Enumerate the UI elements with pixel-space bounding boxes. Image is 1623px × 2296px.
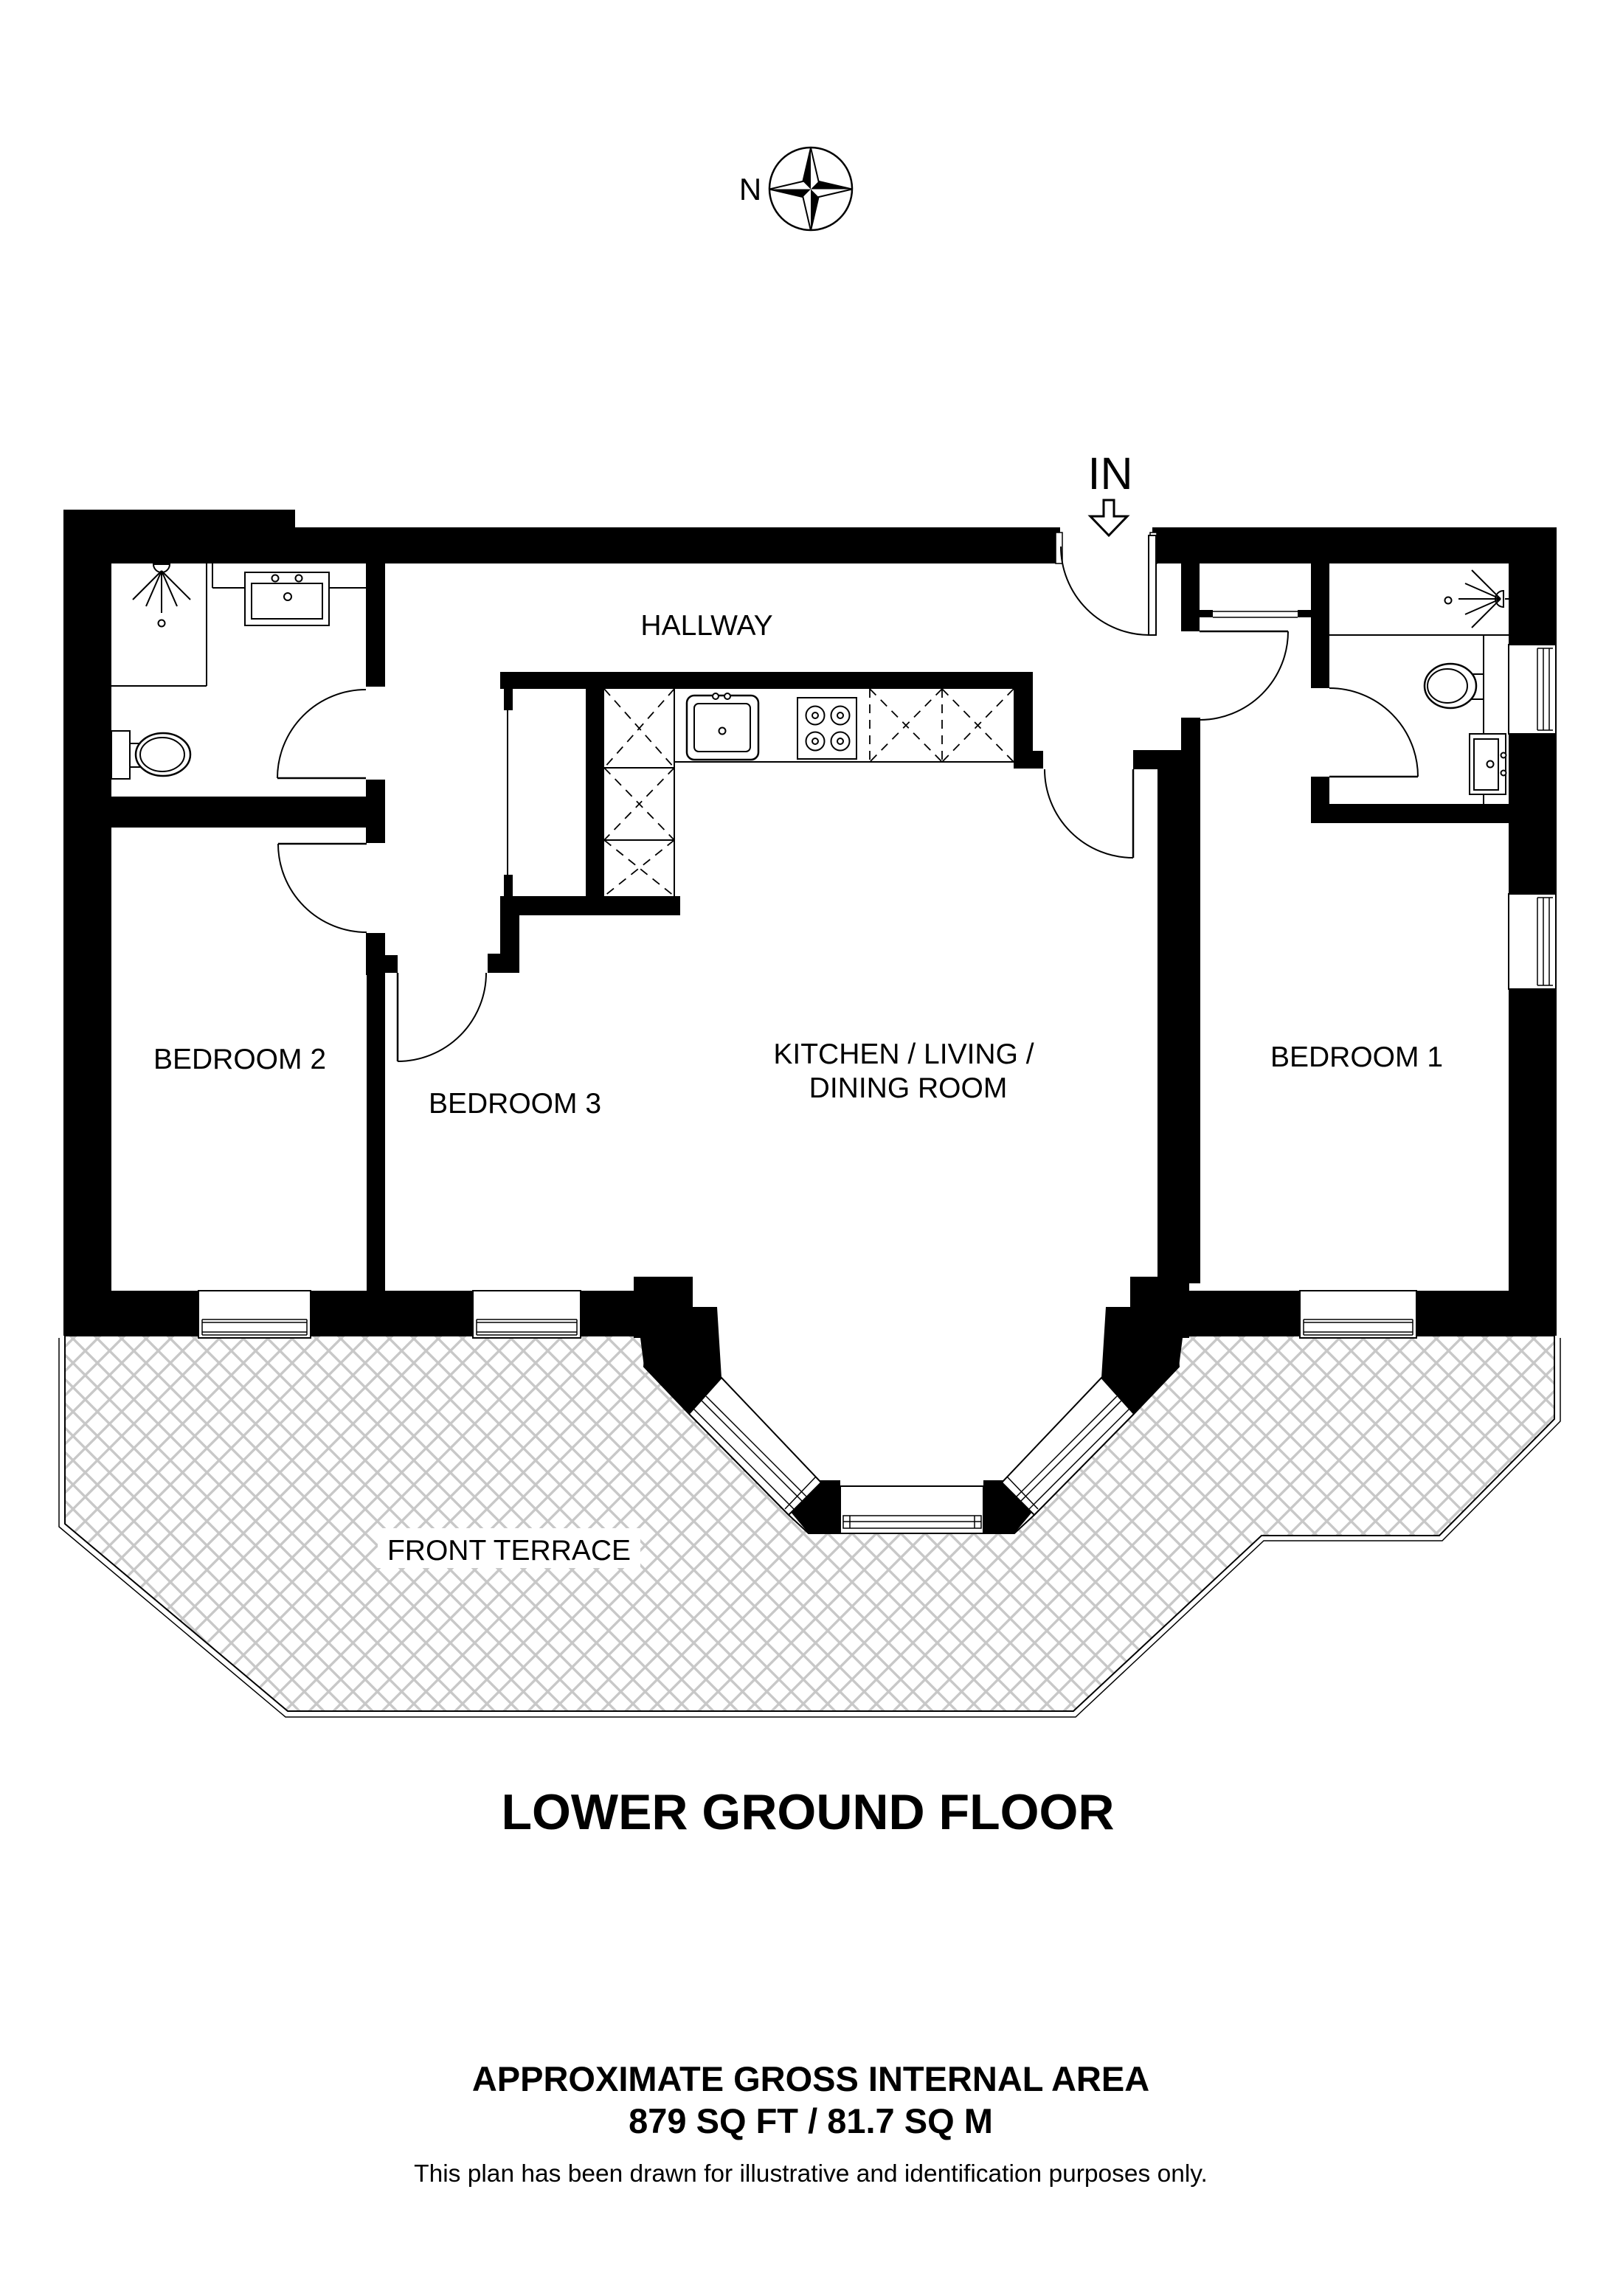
svg-text:BEDROOM 3: BEDROOM 3: [429, 1088, 601, 1120]
svg-text:KITCHEN / LIVING /: KITCHEN / LIVING /: [773, 1038, 1034, 1070]
svg-text:This plan has been drawn for i: This plan has been drawn for illustrativ…: [414, 2160, 1208, 2188]
svg-text:N: N: [739, 172, 761, 207]
svg-text:879 SQ FT / 81.7 SQ M: 879 SQ FT / 81.7 SQ M: [629, 2101, 993, 2140]
svg-text:LOWER GROUND FLOOR: LOWER GROUND FLOOR: [501, 1784, 1114, 1840]
svg-text:BEDROOM 1: BEDROOM 1: [1270, 1041, 1443, 1073]
svg-text:FRONT TERRACE: FRONT TERRACE: [387, 1535, 631, 1567]
svg-text:IN: IN: [1088, 448, 1133, 499]
svg-text:BEDROOM 2: BEDROOM 2: [153, 1044, 326, 1075]
svg-text:DINING ROOM: DINING ROOM: [809, 1072, 1008, 1104]
svg-text:APPROXIMATE GROSS INTERNAL ARE: APPROXIMATE GROSS INTERNAL AREA: [472, 2059, 1149, 2098]
svg-text:HALLWAY: HALLWAY: [640, 610, 772, 642]
